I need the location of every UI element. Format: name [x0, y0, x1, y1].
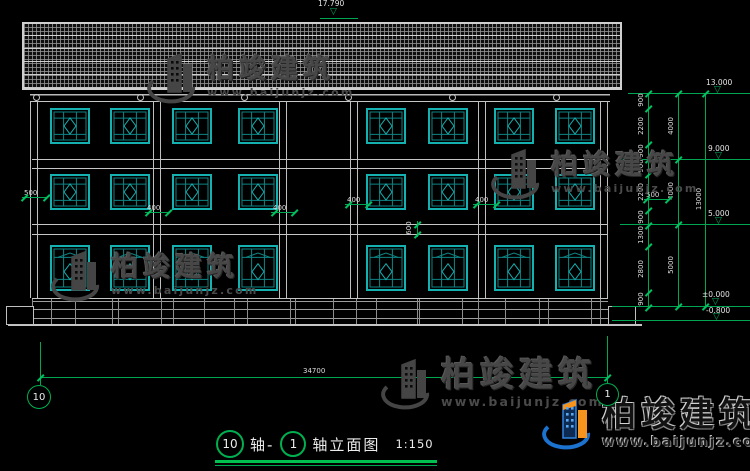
watermark-url: www.baijunjz.com: [441, 396, 604, 409]
dim-chain-line: [705, 93, 706, 306]
dimension-label: 4000: [667, 113, 675, 139]
window: [172, 108, 212, 144]
elevation-marker-line: [320, 18, 358, 19]
column-line: [600, 101, 608, 298]
window: [238, 245, 278, 291]
window: [172, 174, 212, 210]
column-line: [279, 101, 287, 298]
window: [366, 245, 406, 291]
level-extension-line: [612, 320, 750, 321]
window: [110, 174, 150, 210]
elevation-marker-icon: ▽: [713, 313, 720, 322]
eave-rafter-circle: [449, 94, 456, 101]
dimension-label: 5000: [667, 252, 675, 278]
window: [366, 108, 406, 144]
dim-chain-line: [678, 93, 679, 306]
brand-logo-footer: 柏竣建筑 www.baijunjz.com: [541, 396, 750, 450]
window: [172, 245, 212, 291]
title-underline-thick: [215, 460, 437, 463]
watermark-brand: 柏竣建筑: [602, 398, 750, 432]
axis-bubble-1: 1: [596, 383, 619, 406]
window: [555, 245, 595, 291]
title-underline-thin: [215, 465, 437, 466]
elevation-marker-icon: ▽: [715, 217, 722, 226]
elevation-marker-icon: ▽: [714, 86, 721, 95]
watermark-url: www.baijunjz.com: [602, 436, 750, 449]
window: [50, 108, 90, 144]
dimension-label: 2200: [637, 113, 645, 139]
dimension-label: 900: [637, 87, 645, 113]
floor-band: [32, 159, 608, 169]
title-axis-joiner: 轴-: [250, 434, 274, 455]
window: [428, 174, 468, 210]
window: [494, 108, 534, 144]
eave-rafter-circle: [553, 94, 560, 101]
dimension-label: 900: [637, 286, 645, 312]
window: [110, 245, 150, 291]
elevation-marker-icon: ▽: [715, 152, 722, 161]
left-footing-step: [6, 306, 34, 325]
dimension-label: 2800: [637, 256, 645, 282]
title-bubble-1-label: 1: [290, 437, 298, 451]
window: [366, 174, 406, 210]
dim-tick: [291, 209, 298, 216]
dimension-label: 900: [637, 153, 645, 179]
right-footing-step: [608, 306, 636, 325]
dimension-label: 1300: [637, 222, 645, 248]
column-line: [153, 101, 161, 298]
eave-rafter-circle: [241, 94, 248, 101]
window: [238, 174, 278, 210]
stone-plinth: [32, 298, 608, 325]
floor-band: [32, 224, 608, 235]
window: [428, 245, 468, 291]
watermark-brand: 柏竣建筑: [441, 358, 604, 392]
window: [555, 174, 595, 210]
axis-bubble-1-label: 1: [604, 389, 610, 400]
dimension-label: 13000: [695, 184, 703, 214]
window: [50, 174, 90, 210]
window: [238, 108, 278, 144]
eave-rafter-circle: [33, 94, 40, 101]
overall-width-dim: 34700: [303, 367, 325, 375]
window: [494, 245, 534, 291]
window: [494, 174, 534, 210]
title-scale: 1:150: [395, 437, 433, 451]
window: [555, 108, 595, 144]
window: [50, 245, 90, 291]
axis-bubble-10: 10: [27, 385, 51, 409]
title-bubble-10-label: 10: [222, 437, 237, 451]
axis-bubble-10-label: 10: [33, 392, 46, 403]
dim-tick: [165, 209, 172, 216]
cad-elevation-canvas: 34700 10 1 10 轴- 1 轴立面图 1:150 9002200900…: [0, 0, 750, 471]
elevation-marker-icon: ▽: [330, 8, 337, 17]
eave-rafter-circle: [345, 94, 352, 101]
window: [428, 108, 468, 144]
title-bubble-1: 1: [280, 431, 306, 457]
baijun-logo-icon: [541, 396, 593, 450]
roof-tile-hatch: [22, 22, 622, 90]
bottom-dim-line: [40, 377, 607, 378]
eave-rafter-circle: [137, 94, 144, 101]
dim-chain-line: [648, 93, 649, 307]
title-text: 轴立面图: [312, 434, 380, 455]
dimension-label: 600: [405, 215, 413, 241]
column-line: [30, 101, 38, 298]
drawing-title: 10 轴- 1 轴立面图 1:150: [216, 429, 434, 459]
watermark-text: 柏竣建筑 www.baijunjz.com: [602, 398, 750, 449]
window: [110, 108, 150, 144]
baijun-logo-icon: [380, 356, 432, 410]
ground-line: [8, 324, 642, 326]
watermark: 柏竣建筑 www.baijunjz.com: [380, 356, 604, 410]
eave-cornice-band: [30, 87, 610, 102]
title-bubble-10: 10: [216, 430, 244, 458]
watermark-text: 柏竣建筑 www.baijunjz.com: [441, 358, 604, 409]
